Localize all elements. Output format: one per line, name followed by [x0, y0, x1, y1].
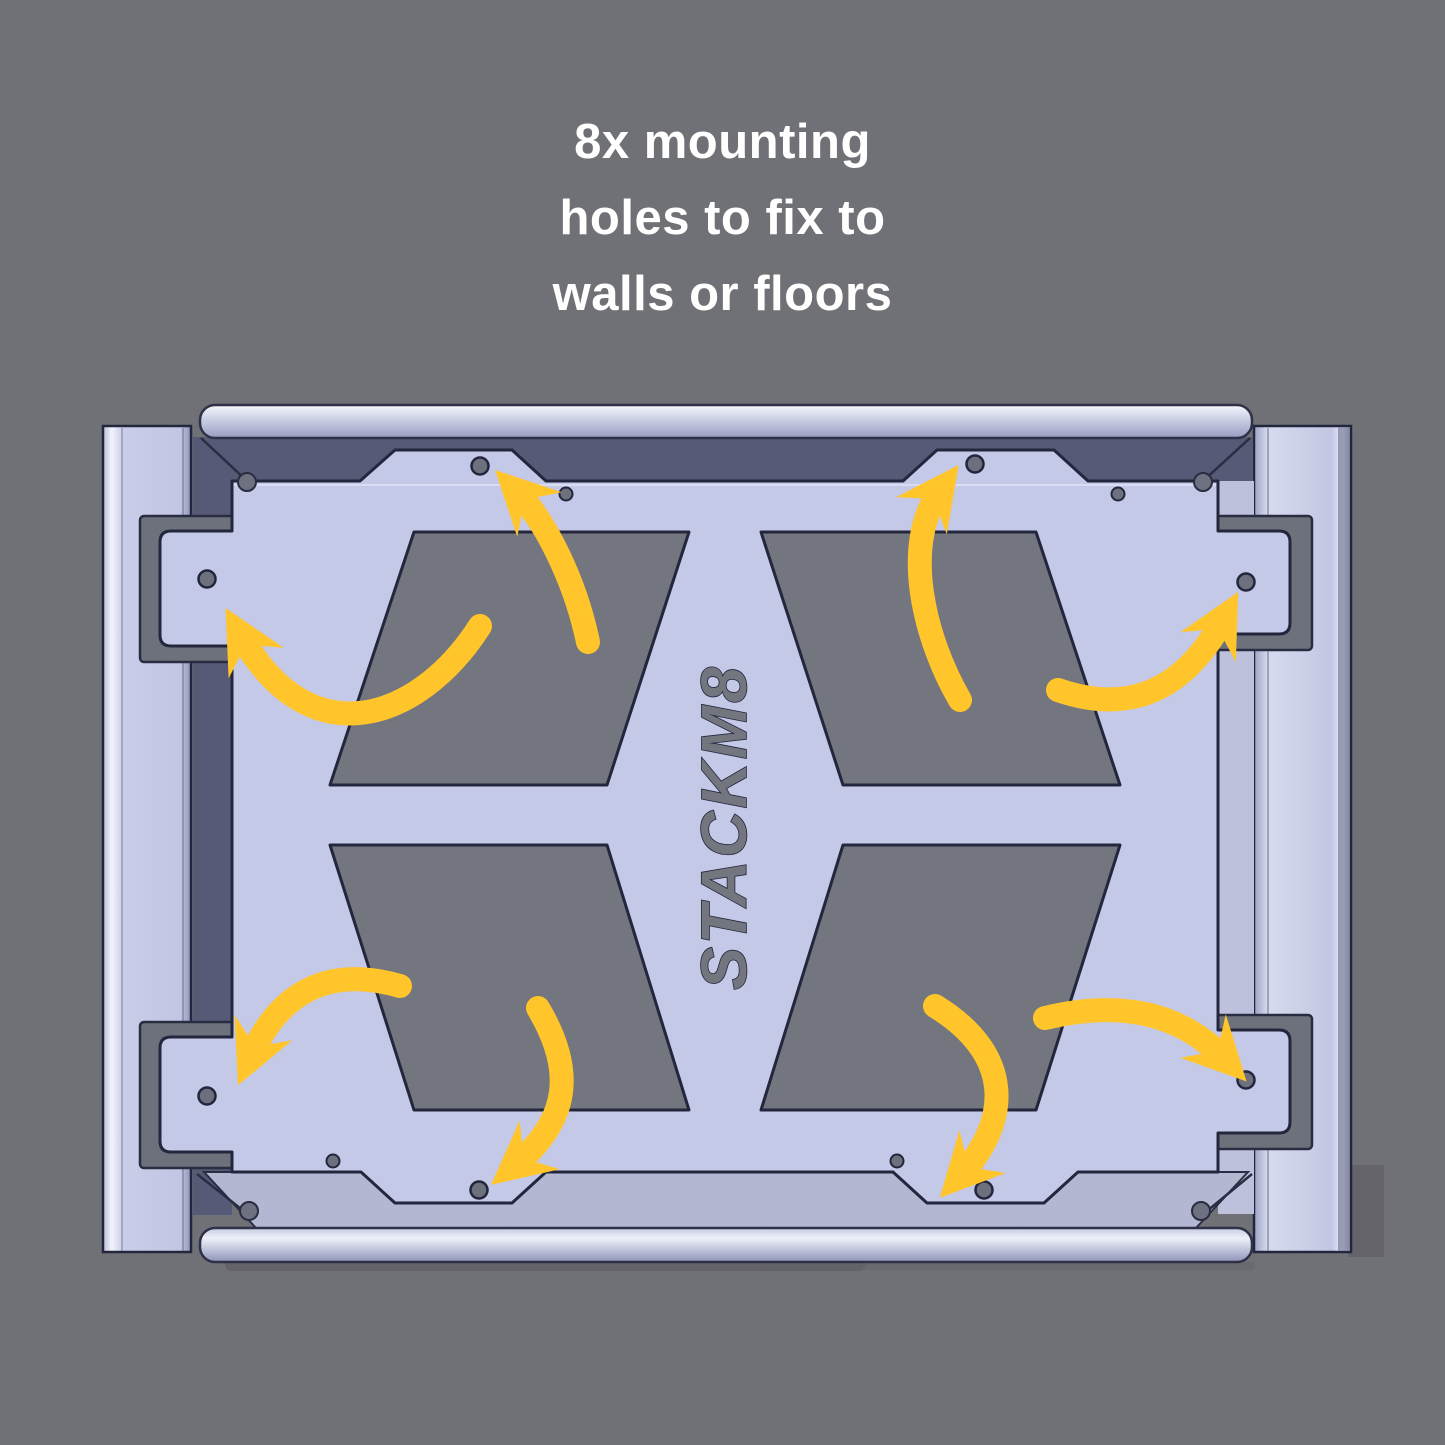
- pilot-hole: [1112, 488, 1125, 501]
- heading: 8x mounting holes to fix to walls or flo…: [0, 104, 1445, 332]
- bottom-bar: [200, 1228, 1252, 1262]
- heading-line-3: walls or floors: [0, 256, 1445, 332]
- logo-cutout-text: STACKM8: [688, 664, 760, 990]
- mounting-hole: [1238, 574, 1255, 591]
- heading-line-2: holes to fix to: [0, 180, 1445, 256]
- bottom-lit-band: [204, 1172, 1248, 1228]
- page: STACKM8: [0, 0, 1445, 1445]
- heading-line-1: 8x mounting: [0, 104, 1445, 180]
- mounting-hole: [976, 1182, 993, 1199]
- pilot-hole: [327, 1155, 340, 1168]
- mounting-hole: [1238, 1072, 1255, 1089]
- pilot-hole: [560, 488, 573, 501]
- top-shadow-band: [199, 437, 1252, 482]
- mounting-hole: [199, 571, 216, 588]
- top-bar: [200, 405, 1252, 438]
- mounting-hole: [967, 456, 984, 473]
- mounting-hole: [471, 1182, 488, 1199]
- mounting-hole: [199, 1088, 216, 1105]
- pilot-hole: [891, 1155, 904, 1168]
- mounting-hole: [472, 458, 489, 475]
